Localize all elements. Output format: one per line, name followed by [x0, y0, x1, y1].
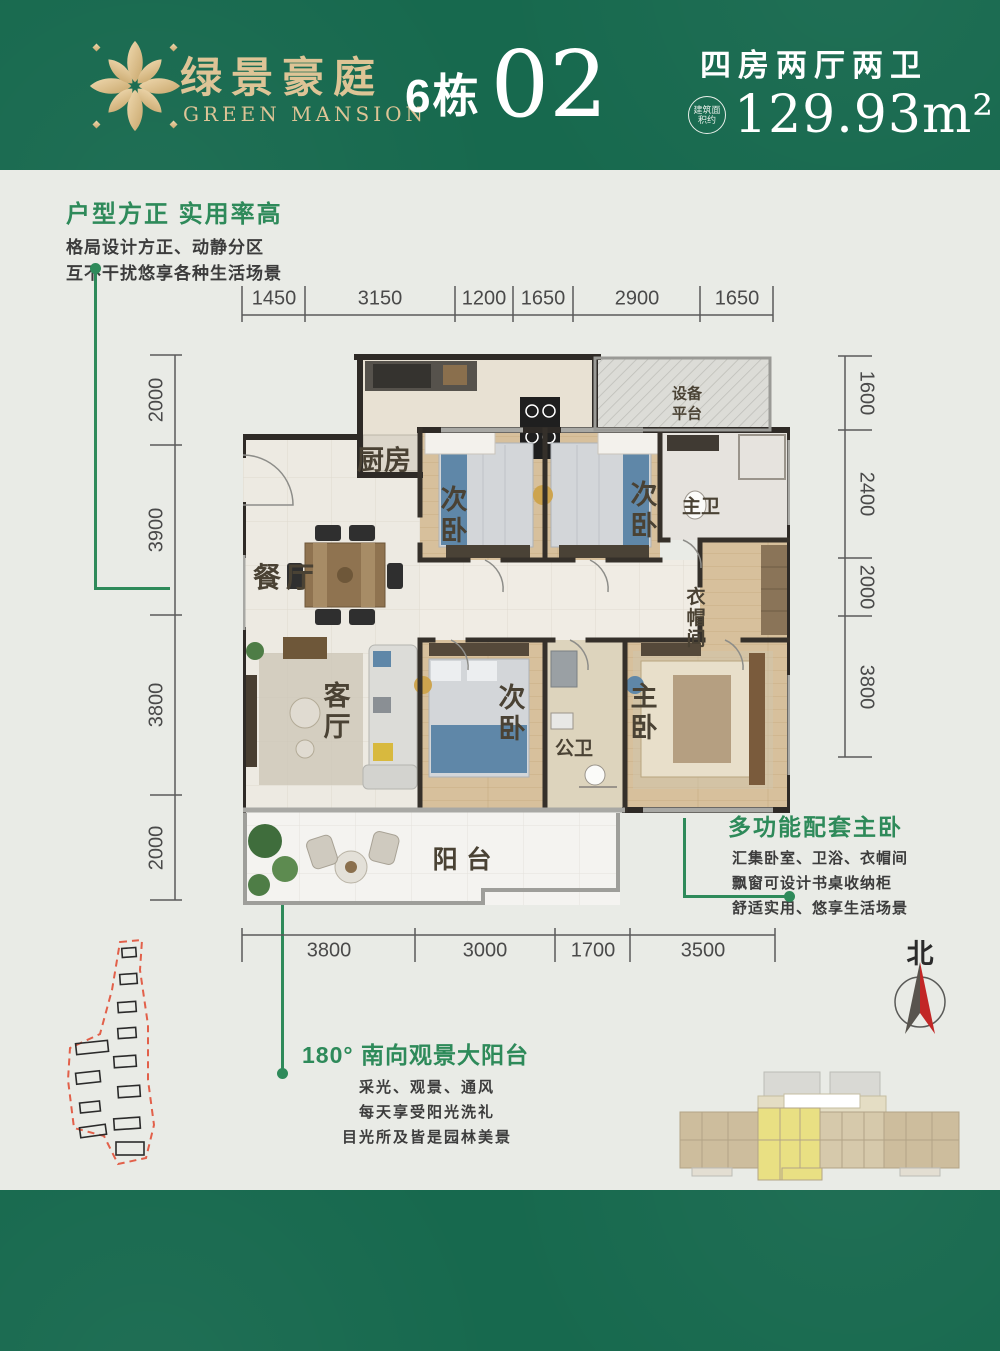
dim-right-2: 2400	[855, 472, 878, 517]
dim-bottom-2: 3000	[463, 940, 508, 963]
room-label-master-bath: 主卫	[682, 492, 720, 519]
dim-top-3: 1200	[462, 288, 507, 311]
room-label-cloakroom: 衣帽间	[682, 587, 709, 650]
dim-left-4: 2000	[146, 826, 169, 871]
room-label-living: 客厅	[315, 681, 354, 743]
footer-band: 300米 教育圈 上学“邻”距离 板式设计 园林小区 购房热线: 0758- 6…	[0, 1190, 1000, 1351]
site-plan-sketch	[62, 930, 212, 1180]
room-label-equipment: 设备平台	[668, 385, 706, 424]
dim-right-3: 2000	[855, 565, 878, 610]
dim-left-3: 3800	[146, 683, 169, 728]
dim-top-2: 3150	[358, 288, 403, 311]
flyer-page: 绿景豪庭 GREEN MANSION 6栋 02 四房两厅两卫 建筑面积约 12…	[0, 0, 1000, 1351]
dim-bottom-4: 3500	[681, 940, 726, 963]
dim-bottom-1: 3800	[307, 940, 352, 963]
room-label-public-bath: 公卫	[555, 734, 593, 761]
dim-left-2: 3900	[146, 508, 169, 553]
dim-bottom-3: 1700	[571, 940, 616, 963]
room-label-bedroom-b: 次卧	[622, 480, 661, 542]
room-label-kitchen: 厨房	[357, 439, 411, 478]
dim-right-1: 1600	[855, 371, 878, 416]
dim-top-4: 1650	[521, 288, 566, 311]
compass-icon	[878, 958, 962, 1042]
dim-top-6: 1650	[715, 288, 760, 311]
room-label-bedroom-a: 次卧	[432, 485, 471, 547]
dim-top-5: 2900	[615, 288, 660, 311]
dim-top-1: 1450	[252, 288, 297, 311]
room-label-balcony: 阳 台	[433, 840, 492, 876]
building-overview	[672, 1068, 967, 1186]
room-label-bedroom-c: 次卧	[490, 683, 529, 745]
dim-left-1: 2000	[146, 378, 169, 423]
room-label-dining: 餐厅	[253, 556, 319, 596]
dim-right-4: 3800	[855, 665, 878, 710]
room-label-master-bedroom: 主卧	[622, 682, 661, 744]
